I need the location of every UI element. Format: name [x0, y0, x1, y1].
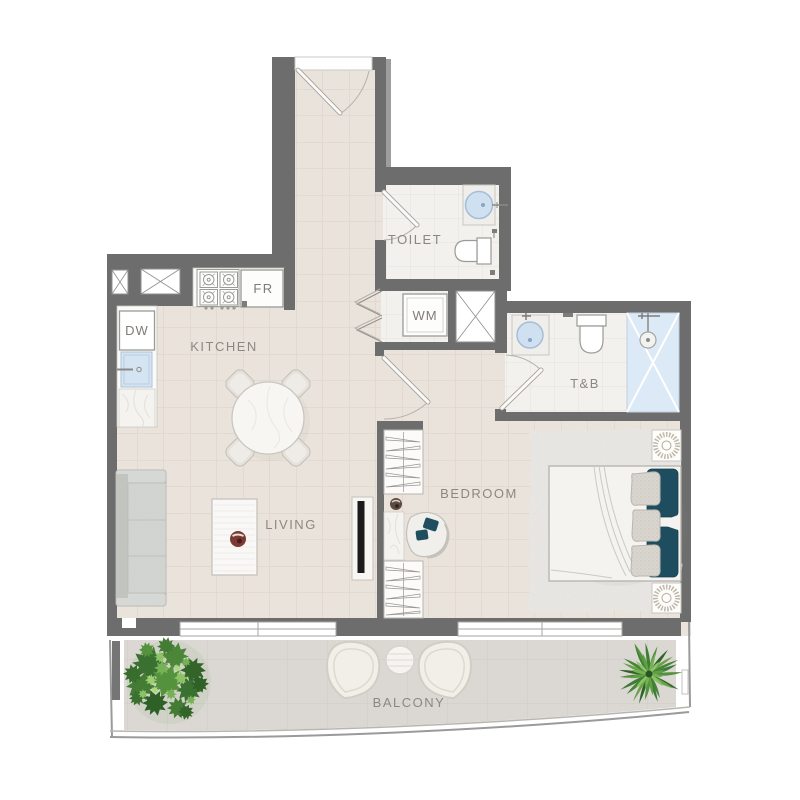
- svg-text:BEDROOM: BEDROOM: [440, 486, 518, 501]
- svg-text:TOILET: TOILET: [388, 232, 442, 247]
- svg-text:BALCONY: BALCONY: [373, 695, 446, 710]
- svg-text:LIVING: LIVING: [265, 517, 317, 532]
- svg-text:FR: FR: [253, 281, 273, 296]
- svg-text:DW: DW: [125, 323, 149, 338]
- svg-text:WM: WM: [412, 308, 437, 323]
- svg-text:T&B: T&B: [570, 376, 600, 391]
- svg-text:KITCHEN: KITCHEN: [190, 339, 258, 354]
